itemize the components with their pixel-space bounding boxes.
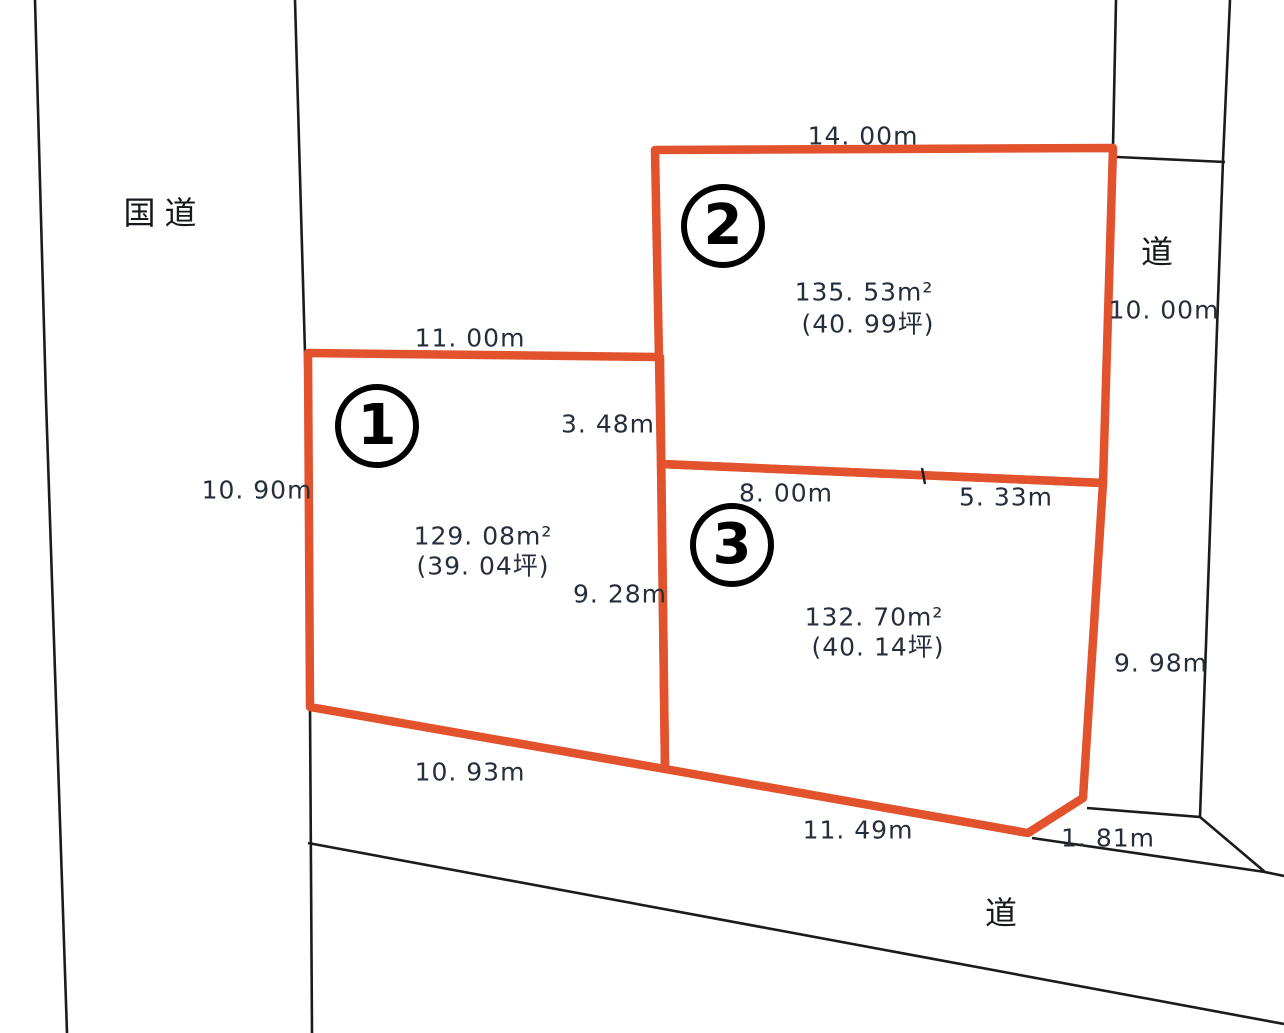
dim-lot3-chamfer: 1. 81m [1061, 826, 1155, 851]
dim-lot1-south: 10. 93m [415, 760, 526, 785]
lot3-number: 3 [713, 517, 752, 573]
lot1-number: 1 [358, 398, 397, 454]
south-road-far-edge [308, 843, 1284, 1024]
east-road-far-edge [1200, 0, 1230, 817]
dim-lot1-east-upper: 3. 48m [561, 412, 655, 437]
lot1-area-m2: 129. 08m² [414, 524, 553, 549]
dim-lot3-north-west: 8. 00m [739, 481, 833, 506]
national-road-label: 国道 [114, 197, 205, 229]
dim-lot2-east: 10. 00m [1109, 298, 1220, 323]
dim-lot3-north-east: 5. 33m [959, 485, 1053, 510]
segment-tick [922, 468, 925, 484]
lot1-number-badge: 1 [335, 384, 419, 468]
dim-lot3-east: 9. 98m [1114, 651, 1208, 676]
dim-lot1-east-lower: 9. 28m [573, 582, 667, 607]
east-road-near-edge [1113, 0, 1116, 147]
lot1-area-tsubo: (39. 04坪) [416, 554, 549, 579]
land-plot-drawing: 国道 道 道 11. 00m 10. 90m 3. 48m 129. 08m² … [0, 0, 1284, 1033]
dim-lot3-south: 11. 49m [803, 818, 914, 843]
east-road-cross-boundary [1117, 157, 1225, 162]
lot3-area-tsubo: (40. 14坪) [811, 635, 944, 660]
lot2-number-badge: 2 [681, 184, 765, 268]
east-road-label: 道 [1132, 236, 1182, 268]
national-road-west-edge [35, 0, 67, 1033]
lot2-area-tsubo: (40. 99坪) [801, 312, 934, 337]
south-road-label: 道 [976, 897, 1026, 929]
dim-lot1-west: 10. 90m [202, 478, 313, 503]
lot3-area-m2: 132. 70m² [805, 605, 944, 630]
lot3-number-badge: 3 [690, 503, 774, 587]
dim-lot1-north: 11. 00m [415, 326, 526, 351]
lot2-number: 2 [704, 198, 743, 254]
lot2-area-m2: 135. 53m² [795, 280, 934, 305]
plat-line-drawing [0, 0, 1284, 1033]
dim-lot2-north: 14. 00m [808, 124, 919, 149]
